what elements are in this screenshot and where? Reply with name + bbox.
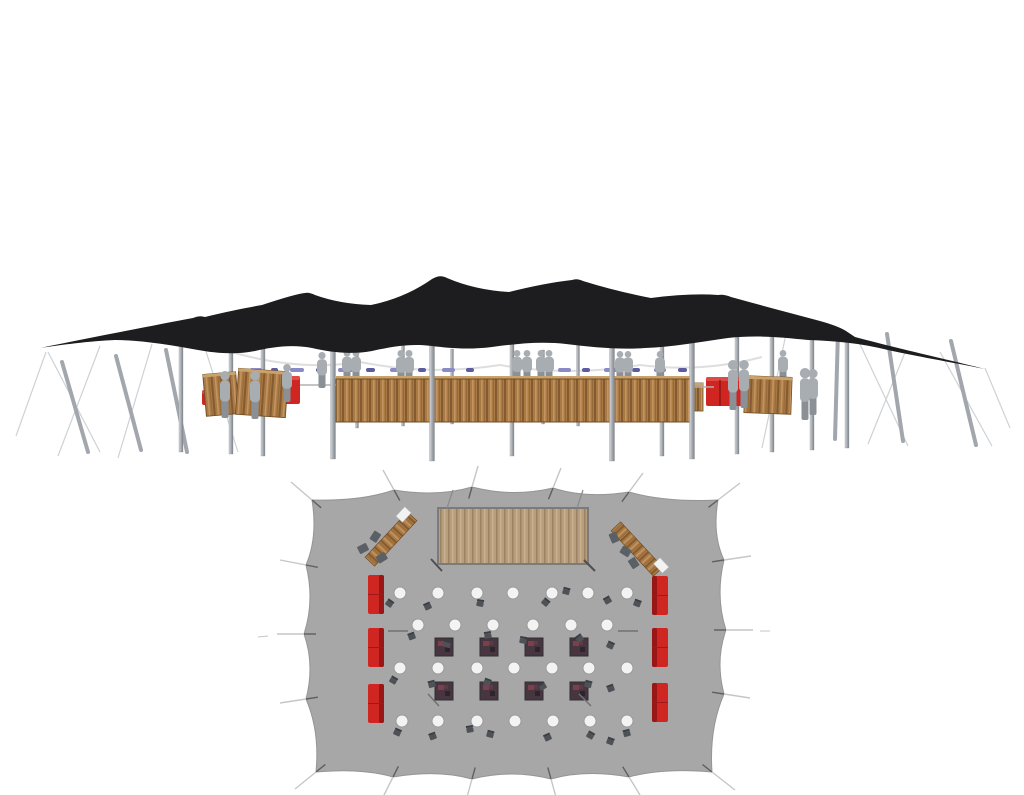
cocktail-table [449, 619, 461, 631]
chair [476, 599, 484, 607]
cocktail-table [509, 715, 521, 727]
bunting-garland [418, 368, 426, 372]
person-head [780, 350, 787, 357]
person-figure [220, 371, 230, 418]
chair [466, 725, 474, 733]
table-texture [528, 641, 534, 646]
cocktail-table [565, 619, 577, 631]
table-texture [489, 641, 493, 645]
guy-line-outer [383, 470, 394, 490]
sofa-plan [652, 683, 668, 722]
render-page [0, 0, 1024, 795]
person-head [283, 364, 291, 372]
cocktail-table [621, 662, 633, 674]
square-table-top [480, 638, 498, 656]
bar-counter [336, 379, 694, 422]
elevation-view [16, 276, 1010, 461]
person-torso [220, 380, 230, 401]
guy-line-outer [629, 473, 643, 492]
guy-line-outer [384, 777, 393, 795]
guy-line-outer [718, 483, 740, 500]
cocktail-table [471, 587, 483, 599]
cocktail-table [547, 715, 559, 727]
perimeter-pole [951, 341, 976, 445]
table-texture [438, 641, 444, 646]
cocktail-table [412, 619, 424, 631]
guy-line-outer [724, 556, 751, 560]
cocktail-table [394, 587, 406, 599]
person-head [538, 350, 545, 357]
person-torso [282, 372, 292, 389]
sofa-plan [368, 628, 384, 667]
far-canopy-edge [225, 350, 762, 371]
chair [484, 631, 492, 639]
person-torso [250, 381, 260, 403]
guy-rope [985, 368, 1010, 428]
table-texture [444, 685, 448, 689]
cocktail-table [508, 662, 520, 674]
person-head [398, 350, 405, 357]
bunting-garland [582, 368, 590, 372]
table-texture [490, 691, 495, 696]
table-texture [534, 685, 538, 689]
plan-view [258, 466, 770, 795]
cocktail-table [583, 662, 595, 674]
guy-line-outer [280, 560, 306, 565]
stake-mark [258, 636, 268, 637]
square-table [435, 638, 453, 656]
table-texture [573, 685, 579, 690]
person-head [220, 371, 229, 380]
table-texture [445, 691, 450, 696]
perimeter-pole [835, 331, 838, 439]
person-torso [728, 370, 738, 393]
person-torso [351, 357, 361, 372]
cocktail-table [621, 715, 633, 727]
table-texture [535, 647, 540, 652]
guy-line-outer [472, 466, 478, 487]
cocktail-table [471, 715, 483, 727]
wooden-cabinet [744, 376, 792, 415]
person-torso [317, 359, 327, 375]
person-torso [739, 370, 749, 392]
square-table-top [435, 682, 453, 700]
cocktail-table [546, 587, 558, 599]
cocktail-table [487, 619, 499, 631]
table-texture [490, 647, 495, 652]
table-texture [580, 647, 585, 652]
person-torso [623, 358, 633, 373]
tent-pole [845, 336, 849, 448]
guy-rope [16, 352, 46, 436]
person-head [657, 351, 664, 358]
bunting-garland [678, 368, 687, 372]
guy-line-outer [629, 777, 640, 795]
sofa-plan [368, 684, 384, 723]
person-head [739, 360, 749, 370]
cocktail-table [582, 587, 594, 599]
perimeter-pole [62, 362, 88, 452]
cocktail-table [432, 662, 444, 674]
chair [519, 636, 527, 644]
cabinet-front [235, 368, 288, 417]
person-figure [739, 360, 749, 408]
cocktail-table [601, 619, 613, 631]
person-torso [342, 357, 352, 372]
perimeter-pole [116, 356, 141, 450]
cocktail-table [621, 587, 633, 599]
bunting-garland [442, 368, 455, 372]
guy-line-outer [724, 694, 750, 698]
cocktail-table [396, 715, 408, 727]
person-head [514, 350, 521, 357]
guy-line-outer [467, 779, 472, 795]
person-head [318, 352, 325, 359]
wooden-cabinet [235, 368, 288, 417]
person-torso [544, 357, 554, 372]
guy-line-outer [291, 482, 312, 500]
cocktail-table [546, 662, 558, 674]
person-torso [522, 357, 532, 372]
person-figure [728, 360, 738, 410]
guy-line-outer [712, 772, 735, 790]
square-table-top [525, 638, 543, 656]
person-head [617, 351, 624, 358]
table-texture [483, 641, 489, 646]
table-texture [528, 685, 534, 690]
cocktail-table [432, 715, 444, 727]
cocktail-table [394, 662, 406, 674]
guy-rope [118, 344, 152, 458]
sofa-plan [368, 575, 384, 614]
square-table [480, 638, 498, 656]
person-head [406, 350, 413, 357]
table-texture [535, 691, 540, 696]
person-torso [778, 357, 788, 372]
person-torso [808, 378, 818, 399]
person-head [250, 371, 260, 381]
table-texture [438, 685, 444, 690]
table-texture [579, 685, 583, 689]
bunting-garland [366, 368, 375, 372]
person-figure [250, 371, 260, 419]
person-torso [404, 357, 414, 373]
person-head [808, 369, 817, 378]
square-table [435, 682, 453, 700]
sofa-plan [652, 576, 668, 615]
person-figure [317, 352, 327, 388]
cocktail-table [471, 662, 483, 674]
person-torso [655, 358, 665, 373]
square-table-top [435, 638, 453, 656]
person-head [524, 350, 531, 357]
perimeter-pole [166, 350, 187, 452]
cocktail-table [432, 587, 444, 599]
guy-line-outer [295, 772, 316, 789]
cocktail-table [584, 715, 596, 727]
guy-line-outer [551, 779, 556, 795]
guy-line-outer [553, 468, 561, 488]
cocktail-table [507, 587, 519, 599]
person-head [728, 360, 738, 370]
person-torso [512, 357, 522, 372]
bunting-garland [632, 368, 640, 372]
tent-render-image [0, 0, 1024, 795]
guy-line-outer [280, 699, 306, 703]
person-head [546, 350, 553, 357]
bunting-garland [558, 368, 571, 372]
person-head [625, 351, 632, 358]
wooden-deck [438, 508, 588, 564]
sofa-plan [652, 628, 668, 667]
cocktail-table [527, 619, 539, 631]
tent-pole [179, 330, 183, 452]
bunting-garland [466, 368, 474, 372]
person-figure [808, 369, 818, 415]
bunting-garland [290, 368, 304, 372]
table-texture [534, 641, 538, 645]
cabinet-front [744, 376, 792, 415]
square-table [525, 638, 543, 656]
